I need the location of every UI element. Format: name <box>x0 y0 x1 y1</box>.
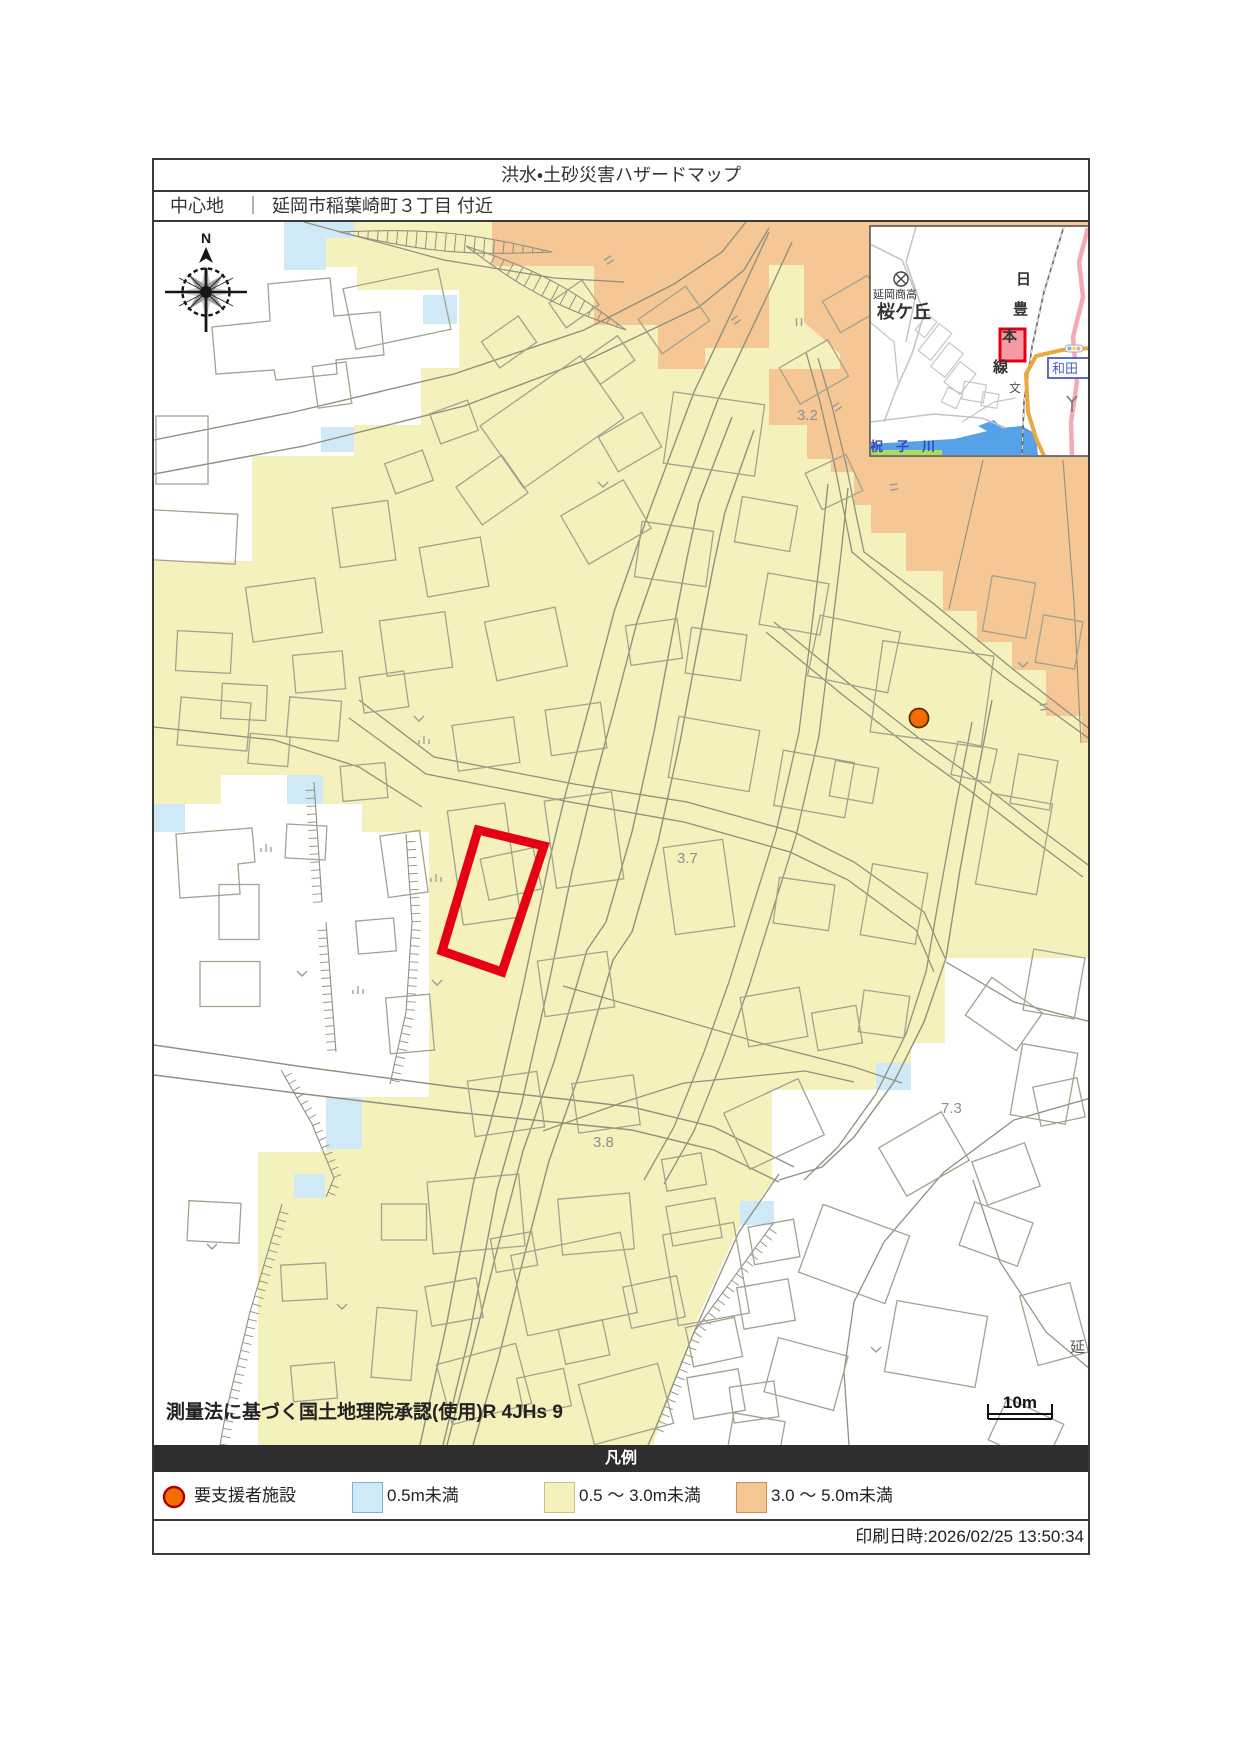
svg-text:線: 線 <box>992 358 1009 376</box>
svg-text:3.7: 3.7 <box>677 850 698 867</box>
svg-text:祝子川: 祝子川 <box>869 439 948 454</box>
svg-text:N: N <box>201 230 211 246</box>
svg-text:文: 文 <box>1009 381 1021 395</box>
svg-text:本: 本 <box>1001 327 1018 345</box>
svg-text:3.8: 3.8 <box>593 1134 614 1151</box>
svg-text:日: 日 <box>1016 271 1031 288</box>
svg-text:和田: 和田 <box>1052 361 1078 376</box>
svg-text:延: 延 <box>1070 1339 1085 1356</box>
svg-text:7.3: 7.3 <box>941 1100 962 1117</box>
svg-text:豊: 豊 <box>1013 300 1028 318</box>
svg-text:桜ケ丘: 桜ケ丘 <box>877 301 931 322</box>
svg-text:3.2: 3.2 <box>797 407 818 424</box>
svg-text:10m: 10m <box>1003 1393 1037 1412</box>
svg-text:測量法に基づく国土地理院承認(使用)R 4JHs 9: 測量法に基づく国土地理院承認(使用)R 4JHs 9 <box>166 1400 563 1423</box>
svg-text:延岡商高: 延岡商高 <box>873 287 917 301</box>
